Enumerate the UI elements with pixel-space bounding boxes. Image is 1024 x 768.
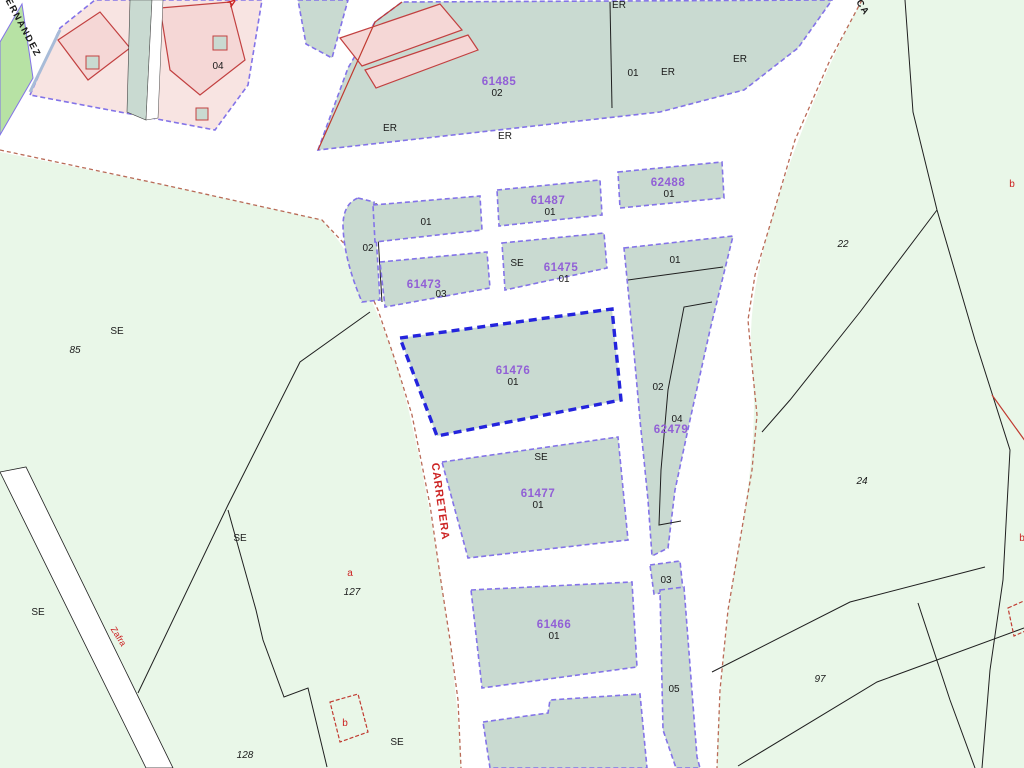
red-label-b: b (342, 718, 348, 729)
rural-label-se: SE (233, 533, 247, 544)
subparcel-label: 01 (669, 255, 681, 266)
subparcel-label: SE (510, 258, 524, 269)
subparcel-label: 03 (435, 289, 447, 300)
subparcel-label: SE (534, 452, 548, 463)
courtyard (86, 56, 99, 69)
red-label-b: b (1019, 533, 1024, 544)
parcel-code-61477: 61477 (521, 488, 555, 500)
cadastral-map-canvas[interactable]: 61485 61487 62488 61473 61475 61476 6247… (0, 0, 1024, 768)
subparcel-label: ER (733, 54, 747, 65)
subparcel-label: 04 (671, 414, 683, 425)
rural-parcel-number: 22 (836, 239, 849, 250)
subparcel-label: 01 (532, 500, 544, 511)
parcel-code-61475: 61475 (544, 262, 579, 274)
courtyard (213, 36, 227, 50)
subparcel-label: 01 (558, 274, 570, 285)
subparcel-label: 01 (627, 68, 639, 79)
subparcel-label: 03 (660, 575, 672, 586)
rural-label-se: SE (110, 326, 124, 337)
parcel-code-61476: 61476 (496, 365, 530, 377)
subparcel-label: 01 (548, 631, 560, 642)
subparcel-label: ER (661, 67, 675, 78)
subparcel-label: 04 (212, 61, 224, 72)
parcel-code-61485: 61485 (482, 76, 517, 88)
red-label-a: a (347, 568, 353, 579)
parcel-code-61466: 61466 (537, 619, 571, 631)
rural-parcel-number: 127 (344, 587, 361, 598)
rural-label-se: SE (31, 607, 45, 618)
subparcel-label: 01 (544, 207, 556, 218)
subparcel-label: 01 (507, 377, 519, 388)
rural-parcel-number: 128 (237, 750, 254, 761)
parcel-code-62488: 62488 (651, 177, 686, 189)
subparcel-label: 02 (491, 88, 503, 99)
rural-parcel-number: 24 (855, 476, 868, 487)
parcel-code-62479: 62479 (654, 424, 688, 436)
red-label-b: b (1009, 179, 1015, 190)
courtyard (196, 108, 208, 120)
rural-parcel-number: 85 (69, 345, 81, 356)
subparcel-label: ER (383, 123, 397, 134)
subparcel-label: 02 (652, 382, 664, 393)
subparcel-label: 01 (663, 189, 675, 200)
subparcel-label: ER (498, 131, 512, 142)
subparcel-label: 01 (420, 217, 432, 228)
rural-parcel-number: 97 (814, 674, 826, 685)
parcel-code-61487: 61487 (531, 195, 565, 207)
subparcel-label: 05 (668, 684, 680, 695)
subparcel-label: ER (612, 0, 626, 11)
rural-label-se: SE (390, 737, 404, 748)
subparcel-label: 02 (362, 243, 374, 254)
map-viewport[interactable]: 61485 61487 62488 61473 61475 61476 6247… (0, 0, 1024, 768)
